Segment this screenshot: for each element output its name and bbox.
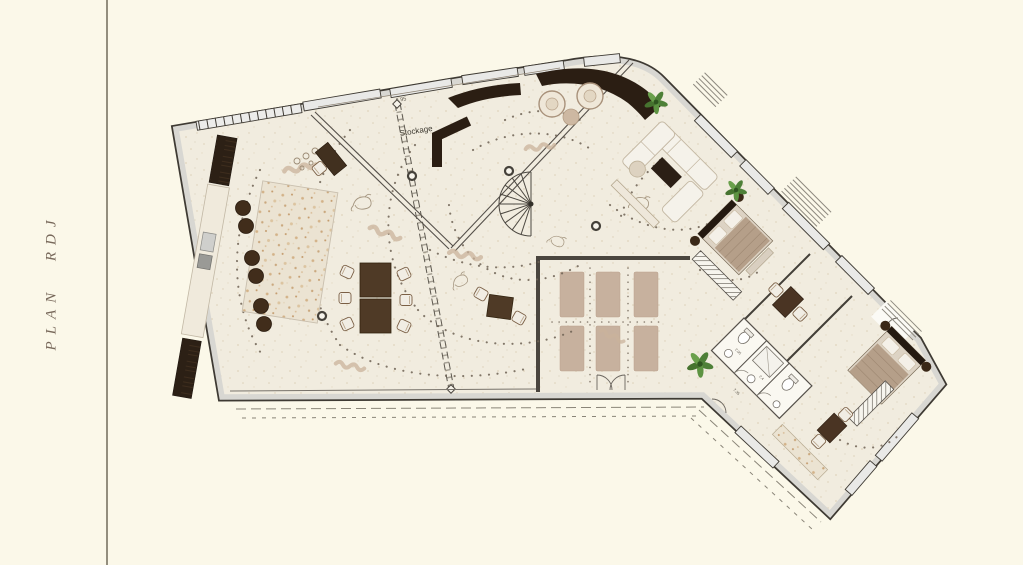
- sink: [200, 232, 216, 252]
- page: PLAN RDJ: [0, 0, 1023, 565]
- pouf: [563, 109, 579, 125]
- floor-plan-drawing: Stockage 6.95: [0, 0, 1023, 565]
- cooktop: [197, 254, 212, 270]
